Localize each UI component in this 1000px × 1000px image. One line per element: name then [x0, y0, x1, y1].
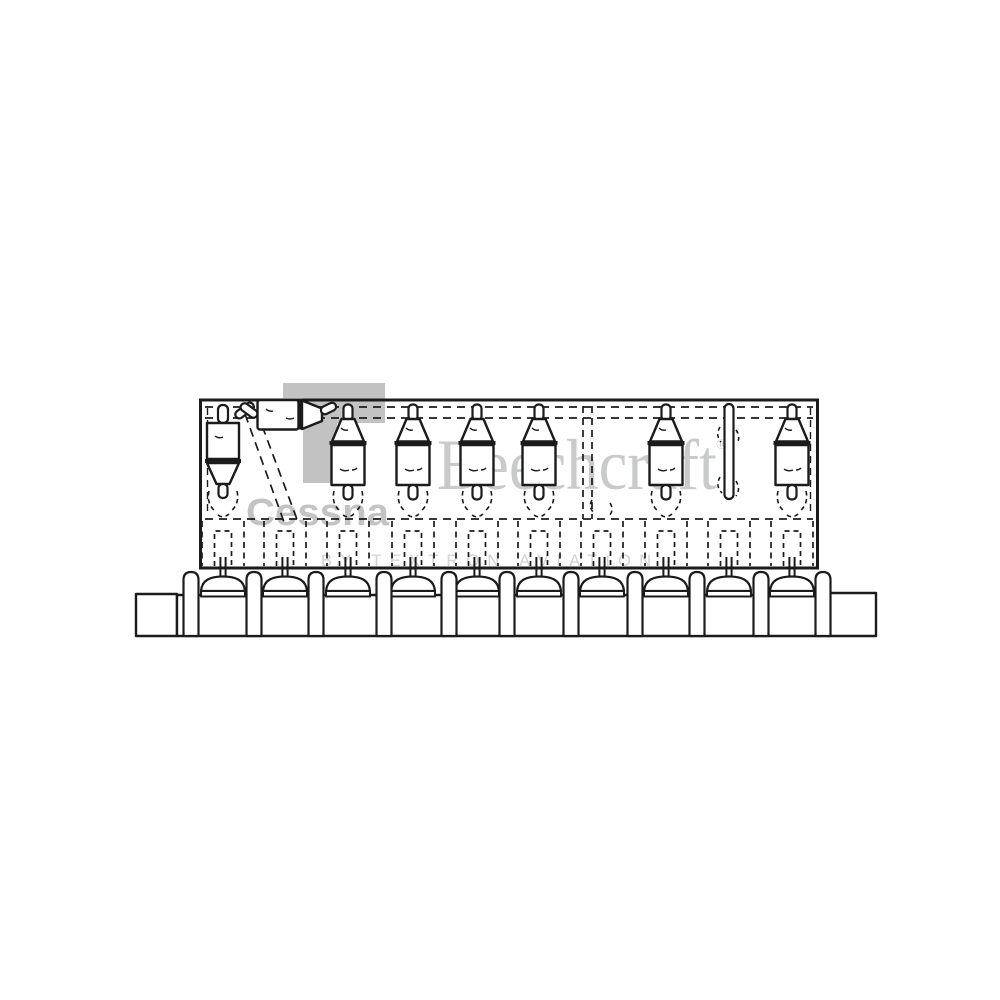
- seated-valve-head-dome: [201, 577, 245, 592]
- guide-boss-post: [377, 572, 392, 636]
- valve-body: [461, 445, 494, 485]
- valve-bottom-stem: [473, 485, 482, 500]
- seated-valve-head-dome: [644, 577, 688, 592]
- valve-bottom-stem: [788, 485, 797, 500]
- scanned-figure: Cessna Beechcraft ® BY TEXTRON AVIATION: [0, 0, 1000, 1000]
- seated-valve-head-dome: [770, 577, 814, 592]
- base-left-step: [136, 594, 177, 636]
- seated-valve-head-dome: [455, 577, 499, 592]
- valve-seat-base: [644, 591, 688, 597]
- guide-boss-post: [184, 572, 199, 636]
- guide-boss-post: [690, 572, 705, 636]
- valve-seat-base: [770, 591, 814, 597]
- valve-seat-base: [391, 591, 435, 597]
- guide-boss-post: [442, 572, 457, 636]
- cessna-watermark-text: Cessna: [246, 492, 390, 534]
- seated-valve-head-dome: [580, 577, 624, 592]
- valve-seat-base: [263, 591, 307, 597]
- valve-body: [776, 445, 809, 485]
- valve-body: [258, 400, 299, 430]
- valve-bottom-stem: [662, 485, 671, 500]
- valve-guide-inner-dashed: [215, 531, 232, 566]
- seated-valve-head-dome: [517, 577, 561, 592]
- valve-guide-inner-dashed: [784, 531, 801, 566]
- valve-assembly-inverted: [205, 405, 241, 517]
- valve-assembly: [774, 405, 811, 517]
- valve-seat-base: [326, 591, 370, 597]
- valve-seat-base: [517, 591, 561, 597]
- valve-body: [650, 445, 683, 485]
- guide-boss-post: [309, 572, 324, 636]
- valve-guide-inner-dashed: [658, 531, 675, 566]
- valve-bottom-stem: [409, 485, 418, 500]
- valve-guide-inner-dashed: [721, 531, 738, 566]
- valve-body: [332, 445, 365, 485]
- guide-boss-post: [247, 572, 262, 636]
- valve-seat-base: [707, 591, 751, 597]
- guide-boss-post: [628, 572, 643, 636]
- guide-boss-post: [564, 572, 579, 636]
- valve-seat-base: [201, 591, 245, 597]
- valve-guide-outer-dashed: [645, 521, 687, 566]
- valve-seat-base: [455, 591, 499, 597]
- guide-boss-post: [754, 572, 769, 636]
- valve-guide-outer-dashed: [708, 521, 750, 566]
- valve-seat-base: [580, 591, 624, 597]
- valve-body: [523, 445, 556, 485]
- valve-installation-diagram: Cessna Beechcraft ® BY TEXTRON AVIATION: [0, 0, 1000, 1000]
- seated-valve-head-dome: [263, 577, 307, 592]
- valve-body: [207, 423, 239, 459]
- valve-bottom-stem: [535, 485, 544, 500]
- valve-guide-inner-dashed: [277, 531, 294, 566]
- valve-bottom-stem: [344, 485, 353, 500]
- seated-valve-head-dome: [391, 577, 435, 592]
- valve-guide-outer-dashed: [771, 521, 813, 566]
- valve-top-stem: [218, 405, 228, 423]
- valve-taper: [207, 463, 239, 484]
- seated-valve-head-dome: [707, 577, 751, 592]
- base-right-step: [830, 593, 876, 636]
- valve-guide-outer-dashed: [202, 521, 244, 566]
- valve-body: [397, 445, 430, 485]
- seated-valve-head-dome: [326, 577, 370, 592]
- valve-stem: [725, 404, 734, 499]
- valve-bottom-stem: [219, 484, 228, 498]
- valve-assembly: [395, 405, 432, 517]
- guide-boss-post: [816, 572, 831, 636]
- guide-boss-post: [500, 572, 515, 636]
